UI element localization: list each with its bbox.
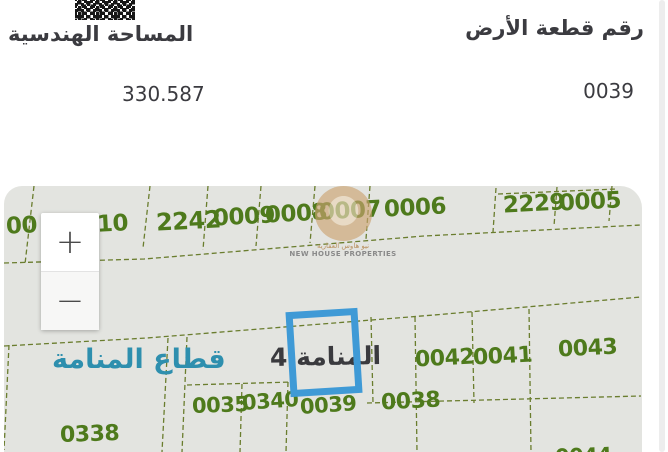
selected-parcel-outline [285,308,362,397]
parcel-number-label: 0042 [414,344,474,372]
boundary-line [187,382,292,385]
parcel-number-label: 10 [96,210,128,238]
scrollbar[interactable] [659,0,665,452]
boundary-line [4,345,9,450]
sector-name-label: قطاع المنامة [52,344,226,375]
qr-code [75,0,135,20]
parcel-number-label: 2229 [502,189,565,218]
map-zoom-control: + − [41,213,99,330]
boundary-line [529,309,531,452]
zoom-out-button[interactable]: − [41,271,99,330]
parcel-number-label: 2242 [155,205,221,236]
page: المساحة الهندسية 330.587 رقم قطعة الأرض … [0,0,668,452]
cadastral-map[interactable]: قطاع المنامة المنامة 4 نيو هاوس العقارية… [4,186,642,452]
plot-number-label: رقم قطعة الأرض [465,16,644,40]
parcel-number-label: 0043 [557,334,617,362]
boundary-line [415,317,417,452]
parcel-number-label: 0035 [192,392,249,418]
parcel-number-label: 0005 [558,187,621,216]
area-value: 330.587 [122,82,205,106]
parcel-number-label: 0006 [383,193,446,222]
plot-number-value: 0039 [583,79,634,103]
area-label: المساحة الهندسية [8,22,193,46]
parcel-number-label: 0041 [472,342,532,370]
parcel-number-label: 0038 [380,387,440,415]
parcel-number-label: 00 [5,212,37,240]
boundary-line [493,188,496,232]
parcel-number-label: 0338 [60,421,120,448]
zoom-in-button[interactable]: + [41,213,99,271]
parcel-number-label: 0044 [555,443,612,452]
boundary-line [143,186,150,248]
parcel-number-label: 0007 [318,196,381,225]
